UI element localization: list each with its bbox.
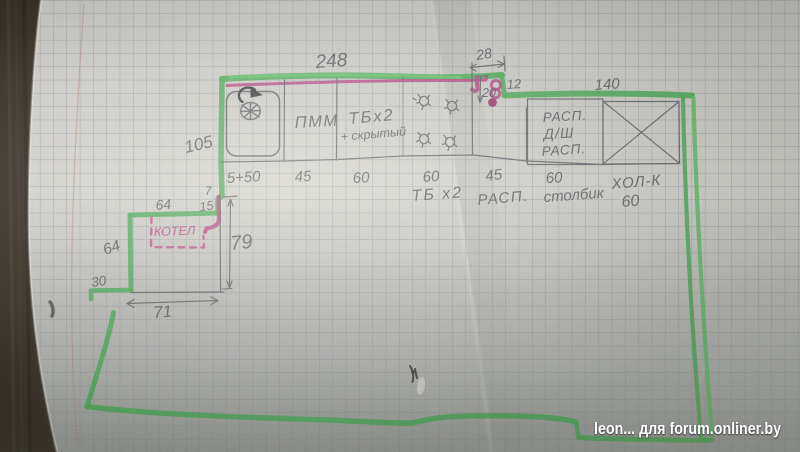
svg-text:leon... для forum.onliner.by: leon... для forum.onliner.by <box>594 419 781 438</box>
